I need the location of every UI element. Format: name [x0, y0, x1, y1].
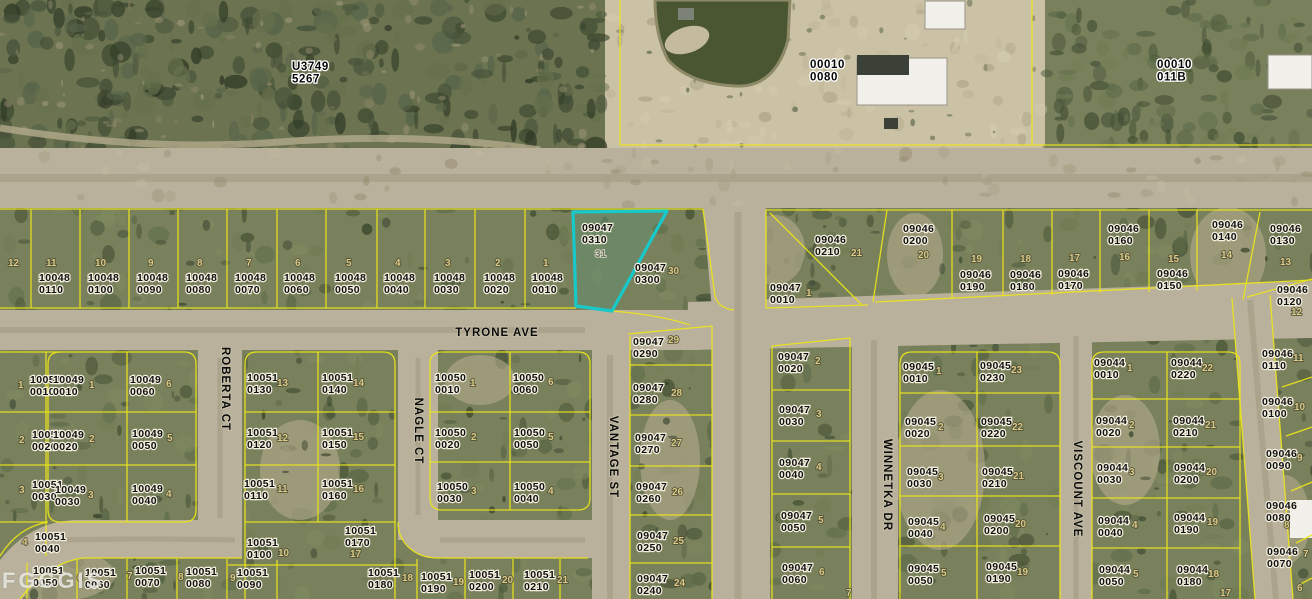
lot-number-1-09045-0010: 1	[936, 366, 942, 377]
lot-number-7: 7	[846, 588, 852, 599]
lot-number-2-09044-0020: 2	[1129, 420, 1135, 431]
lot-number-12-09046-0120: 12	[1291, 307, 1303, 318]
lot-number-10-10048-0100: 10	[95, 258, 107, 269]
lot-number-2-09047-0020: 2	[815, 356, 821, 367]
street-label-viscount-ave: VISCOUNT AVE	[1071, 441, 1083, 538]
lot-number-4-09045-0040: 4	[940, 522, 946, 533]
lot-number-9-10051-0090: 9	[230, 573, 236, 584]
lot-number-4-09044-0040: 4	[1132, 520, 1138, 531]
lot-number-15-09046-0150: 15	[1168, 254, 1180, 265]
lot-number-22-09044-0220: 22	[1202, 363, 1214, 374]
lot-number-3-10051-0030: 3	[19, 485, 25, 496]
lot-number-1-09044-0010: 1	[1127, 363, 1133, 374]
street-label-winnetka-dr: WINNETKA DR	[881, 439, 893, 531]
lot-number-22-09045-0220: 22	[1012, 422, 1024, 433]
lot-number-8-09046-0080: 8	[1284, 520, 1290, 531]
lot-number-19-09044-0190: 19	[1207, 517, 1219, 528]
lot-number-3-10049-0030: 3	[88, 490, 94, 501]
lot-number-1-10051-0010: 1	[18, 380, 24, 391]
lot-number-10-10051-0100: 10	[278, 548, 290, 559]
lot-number-18-09044-0180: 18	[1208, 569, 1220, 580]
lot-number-10-09046-0100: 10	[1294, 402, 1306, 413]
street-label-nagle-ct: NAGLE CT	[412, 398, 424, 465]
lot-number-20-09045-0200: 20	[1015, 519, 1027, 530]
lot-number-6-09047-0060: 6	[819, 567, 825, 578]
lot-number-13-10051-0130: 13	[277, 378, 289, 389]
lot-number-19-09045-0190: 19	[1017, 567, 1029, 578]
lot-number-11-09046-0110: 11	[1293, 353, 1304, 364]
lot-number-5-09047-0050: 5	[818, 515, 824, 526]
lot-number-23-09045-0230: 23	[1011, 365, 1023, 376]
lot-number-30-09047-0300: 30	[668, 266, 680, 277]
street-label-tyrone-ave: TYRONE AVE	[455, 327, 538, 339]
lot-number-14-09046-0140: 14	[1221, 250, 1233, 261]
lot-number-16-09046-0160: 16	[1119, 252, 1131, 263]
lot-number-9-09046-0090: 9	[1297, 453, 1303, 464]
lot-number-4-10051-0040: 4	[22, 537, 28, 548]
lot-number-4-10049-0040: 4	[166, 489, 172, 500]
lot-number-8-10051-0080: 8	[178, 572, 184, 583]
lot-number-7-10051-0070: 7	[127, 571, 133, 582]
street-label-roberta-ct: ROBERTA CT	[219, 347, 231, 431]
lot-number-29-09047-0290: 29	[668, 335, 680, 346]
lot-number-1-10050-0010: 1	[470, 378, 476, 389]
lot-number-7-09046-0070: 7	[1303, 549, 1309, 560]
lot-number-4-10048-0040: 4	[395, 258, 401, 269]
lot-number-6-10049-0060: 6	[166, 379, 172, 390]
lot-number-3-09044-0030: 3	[1129, 467, 1135, 478]
lot-number-1-10048-0010: 1	[543, 258, 549, 269]
lot-number-26-09047-0260: 26	[672, 487, 684, 498]
lot-number-18-10051-0180: 18	[402, 573, 414, 584]
lot-number-18-09046-0180: 18	[1020, 254, 1032, 265]
parcel-map: 1210048011011100480100101004800909100480…	[0, 0, 1312, 599]
lot-number-2-10049-0020: 2	[89, 434, 95, 445]
map-canvas[interactable]: 1210048011011100480100101004800909100480…	[0, 0, 1312, 599]
lot-number-3-09045-0030: 3	[938, 472, 944, 483]
lot-number-12-10051-0120: 12	[277, 433, 289, 444]
lot-number-11-10051-0110: 11	[277, 484, 288, 495]
lot-number-3-10048-0030: 3	[445, 258, 451, 269]
lot-number-6-10051-0060: 6	[77, 573, 83, 584]
lot-number-5-10049-0050: 5	[167, 433, 173, 444]
lot-number-25-09047-0250: 25	[673, 536, 685, 547]
lot-number-11-10048-0110: 11	[46, 258, 57, 269]
lot-number-17-09046-0170: 17	[1069, 253, 1081, 264]
lot-number-24-09047-0240: 24	[674, 578, 686, 589]
lot-number-5-10050-0050: 5	[548, 432, 554, 443]
lot-number-2-10048-0020: 2	[495, 258, 501, 269]
lot-number-21-09046-0210: 21	[851, 248, 863, 259]
lot-number-19-09046-0190: 19	[971, 254, 983, 265]
lot-number-2-10050-0020: 2	[471, 432, 477, 443]
lot-number-7-10048-0070: 7	[246, 258, 252, 269]
lot-number-17: 17	[1220, 588, 1232, 599]
lot-number-16-10051-0160: 16	[353, 484, 365, 495]
lot-number-28-09047-0280: 28	[671, 388, 683, 399]
lot-number-14-10051-0140: 14	[353, 378, 365, 389]
lot-number-20-09046-0200: 20	[918, 250, 930, 261]
lot-number-1-09047-0010: 1	[806, 288, 812, 299]
lot-number-6-10048-0060: 6	[295, 258, 301, 269]
lot-number-17-10051-0170: 17	[350, 549, 362, 560]
lot-number-4-09047-0040: 4	[816, 462, 822, 473]
lot-number-20-10051-0200: 20	[502, 575, 514, 586]
lot-number-31-09047-0310: 31	[595, 249, 607, 260]
lot-number-20-09044-0200: 20	[1206, 467, 1218, 478]
lot-number-15-10051-0150: 15	[353, 432, 365, 443]
lot-number-5-09044-0050: 5	[1133, 569, 1139, 580]
lot-number-13-09046-0130: 13	[1280, 257, 1292, 268]
lot-number-27-09047-0270: 27	[671, 438, 683, 449]
street-label-vantage-st: VANTAGE ST	[607, 416, 619, 498]
lot-number-6-10050-0060: 6	[548, 377, 554, 388]
lot-number-3-10050-0030: 3	[471, 486, 477, 497]
lot-number-3-09047-0030: 3	[816, 409, 822, 420]
lot-number-21-10051-0210: 21	[557, 575, 569, 586]
lot-number-21-09045-0210: 21	[1013, 471, 1025, 482]
lot-number-5-10048-0050: 5	[346, 258, 352, 269]
lot-number-4-10050-0040: 4	[548, 486, 554, 497]
lot-number-2-09045-0020: 2	[938, 422, 944, 433]
lot-number-5-09045-0050: 5	[941, 568, 947, 579]
lot-number-6: 6	[1297, 583, 1303, 594]
lot-number-12: 12	[8, 258, 20, 269]
lot-number-19-10051-0190: 19	[453, 577, 465, 588]
lot-number-1-10049-0010: 1	[89, 380, 95, 391]
lot-number-2-10051-0020: 2	[19, 435, 25, 446]
lot-number-21-09044-0210: 21	[1205, 420, 1217, 431]
lot-number-9-10048-0090: 9	[148, 258, 154, 269]
lot-number-8-10048-0080: 8	[197, 258, 203, 269]
